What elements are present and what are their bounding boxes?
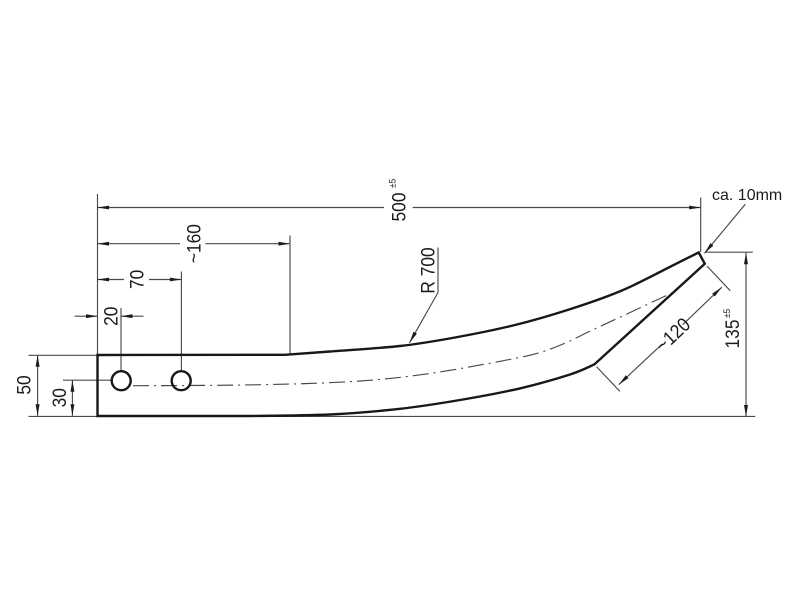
svg-text:30: 30 bbox=[48, 388, 70, 407]
svg-text:20: 20 bbox=[100, 307, 122, 326]
svg-text:±5: ±5 bbox=[387, 179, 398, 188]
svg-text:70: 70 bbox=[126, 270, 148, 289]
svg-text:R 700: R 700 bbox=[416, 247, 438, 293]
svg-text:±5: ±5 bbox=[722, 309, 733, 318]
svg-text:ca. 10mm: ca. 10mm bbox=[712, 187, 782, 204]
svg-text:50: 50 bbox=[12, 375, 34, 394]
svg-text:~160: ~160 bbox=[182, 224, 204, 263]
svg-text:500: 500 bbox=[388, 193, 410, 222]
svg-text:135: 135 bbox=[721, 320, 743, 349]
